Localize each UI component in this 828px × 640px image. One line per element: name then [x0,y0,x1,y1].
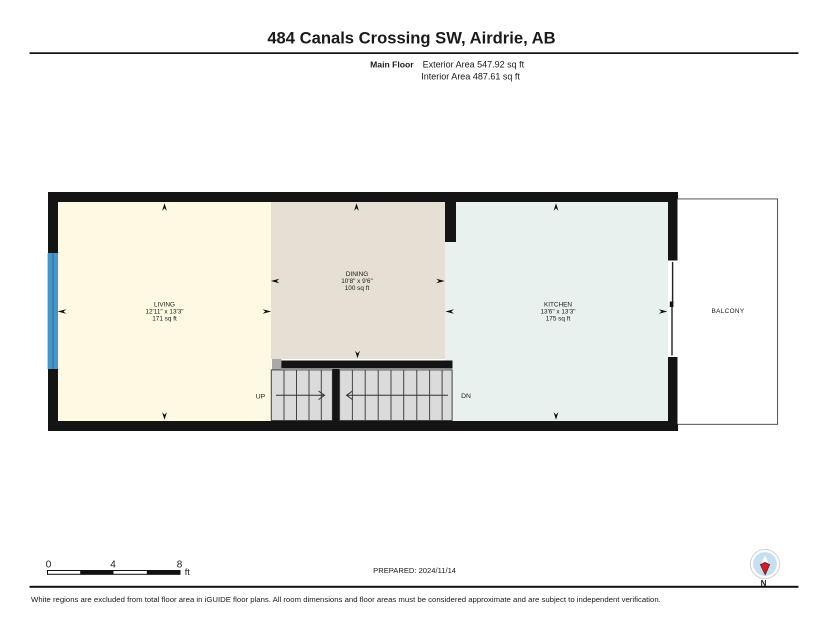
svg-text:White regions are excluded fro: White regions are excluded from total fl… [31,595,661,604]
svg-text:PREPARED: 2024/11/14: PREPARED: 2024/11/14 [373,566,456,575]
svg-text:UP: UP [256,394,266,401]
svg-text:DN: DN [461,393,471,400]
svg-text:8: 8 [177,560,183,571]
svg-text:100 sq ft: 100 sq ft [345,285,370,292]
svg-text:12'11" x 13'3": 12'11" x 13'3" [145,309,183,316]
svg-text:Main Floor: Main Floor [370,59,414,69]
svg-text:10'8" x 9'6": 10'8" x 9'6" [341,278,373,285]
svg-text:13'6" x 13'3": 13'6" x 13'3" [540,309,575,316]
svg-text:LIVING: LIVING [154,302,175,309]
svg-text:ft: ft [185,567,191,577]
svg-text:DINING: DINING [346,271,368,278]
svg-text:171 sq ft: 171 sq ft [152,316,177,323]
svg-text:0: 0 [46,560,52,571]
svg-text:484 Canals Crossing SW, Airdri: 484 Canals Crossing SW, Airdrie, AB [267,28,555,47]
svg-text:Exterior Area 547.92 sq ft: Exterior Area 547.92 sq ft [423,59,525,69]
svg-text:4: 4 [110,560,116,571]
svg-text:KITCHEN: KITCHEN [544,302,572,309]
svg-text:175 sq ft: 175 sq ft [546,316,571,323]
svg-text:Interior Area 487.61 sq ft: Interior Area 487.61 sq ft [421,71,520,81]
svg-text:BALCONY: BALCONY [712,308,745,315]
